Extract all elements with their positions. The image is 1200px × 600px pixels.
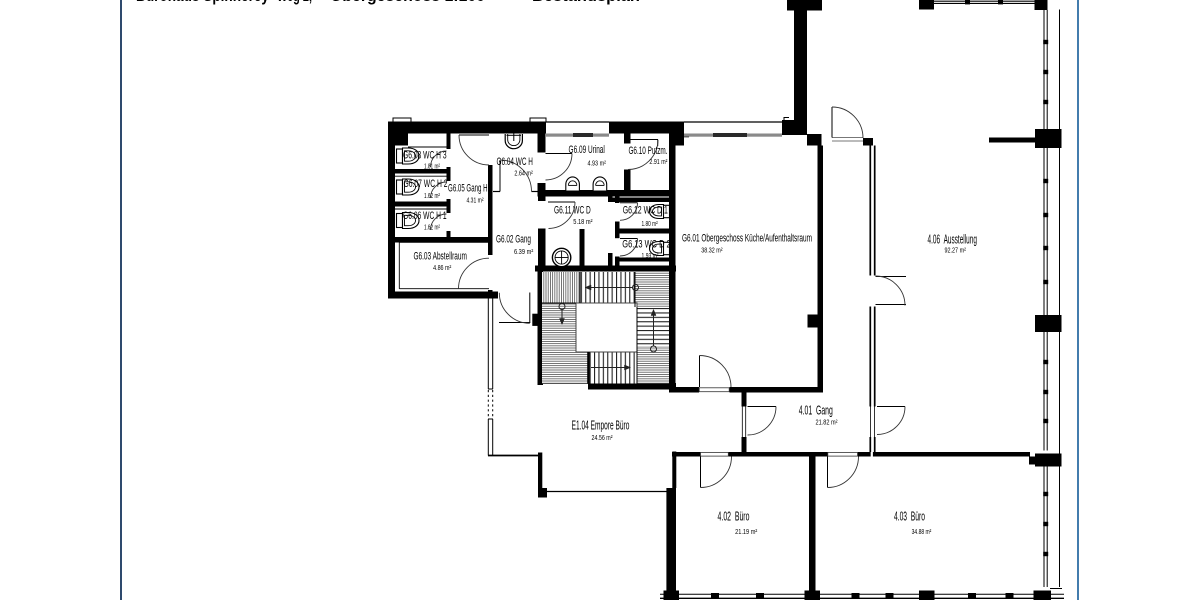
svg-text:2.91 m²: 2.91 m² <box>649 157 667 166</box>
svg-text:38.32 m²: 38.32 m² <box>701 245 723 254</box>
svg-text:Weg 2,: Weg 2, <box>277 0 312 5</box>
svg-text:1.62 m²: 1.62 m² <box>424 223 440 232</box>
svg-text:4.03 Büro: 4.03 Büro <box>894 510 925 524</box>
svg-text:1.62 m²: 1.62 m² <box>424 191 440 200</box>
svg-text:G6.09 Urinal: G6.09 Urinal <box>569 144 605 156</box>
svg-text:1.80 m²: 1.80 m² <box>641 219 658 228</box>
svg-text:1.93 m²: 1.93 m² <box>642 251 659 260</box>
svg-text:92.27 m²: 92.27 m² <box>944 246 966 255</box>
svg-text:G6.01 Obergeschoss Küche/Aufen: G6.01 Obergeschoss Küche/Aufenthaltsraum <box>682 233 812 245</box>
svg-text:4.06 Ausstellung: 4.06 Ausstellung <box>928 232 977 246</box>
svg-text:G6.02 Gang: G6.02 Gang <box>496 234 531 246</box>
svg-text:G6.03 Abstellraum: G6.03 Abstellraum <box>413 251 467 263</box>
svg-text:Bestandsplan: Bestandsplan <box>532 0 640 5</box>
svg-text:21.82 m²: 21.82 m² <box>816 418 838 427</box>
svg-text:Bürohaus Spinnerey: Bürohaus Spinnerey <box>136 0 270 5</box>
svg-text:21.19 m²: 21.19 m² <box>735 527 758 536</box>
svg-text:G6.04 WC H: G6.04 WC H <box>497 156 533 168</box>
svg-text:G6.11 WC D: G6.11 WC D <box>554 205 591 217</box>
svg-text:G6.07 WC H 2: G6.07 WC H 2 <box>404 178 448 190</box>
svg-text:4.93 m²: 4.93 m² <box>588 158 607 167</box>
svg-text:G6.08 WC H 3: G6.08 WC H 3 <box>403 150 447 162</box>
svg-text:4.01 Gang: 4.01 Gang <box>799 404 833 418</box>
svg-text:G6.12 WC D 1: G6.12 WC D 1 <box>623 205 668 217</box>
svg-text:24.56 m²: 24.56 m² <box>592 433 613 442</box>
svg-text:E1.04 Empore Büro: E1.04 Empore Büro <box>572 419 630 433</box>
svg-text:6.39 m²: 6.39 m² <box>514 247 534 256</box>
svg-text:G6.05 Gang H: G6.05 Gang H <box>448 183 488 195</box>
svg-text:5.18 m²: 5.18 m² <box>573 217 593 226</box>
svg-text:4.86 m²: 4.86 m² <box>433 263 452 272</box>
svg-text:1.81 m²: 1.81 m² <box>424 162 440 171</box>
svg-text:G6.10 Putzm.: G6.10 Putzm. <box>628 145 667 157</box>
svg-text:4.02 Büro: 4.02 Büro <box>718 510 750 524</box>
svg-text:G6.06 WC H 1: G6.06 WC H 1 <box>403 210 447 222</box>
svg-text:34.88 m²: 34.88 m² <box>912 527 932 536</box>
svg-text:2.64 m²: 2.64 m² <box>514 169 533 178</box>
svg-text:4.31 m²: 4.31 m² <box>467 196 484 205</box>
svg-text:Obergeschoss 1:100: Obergeschoss 1:100 <box>330 0 485 5</box>
svg-text:G6.13 WC D 2: G6.13 WC D 2 <box>622 239 670 251</box>
